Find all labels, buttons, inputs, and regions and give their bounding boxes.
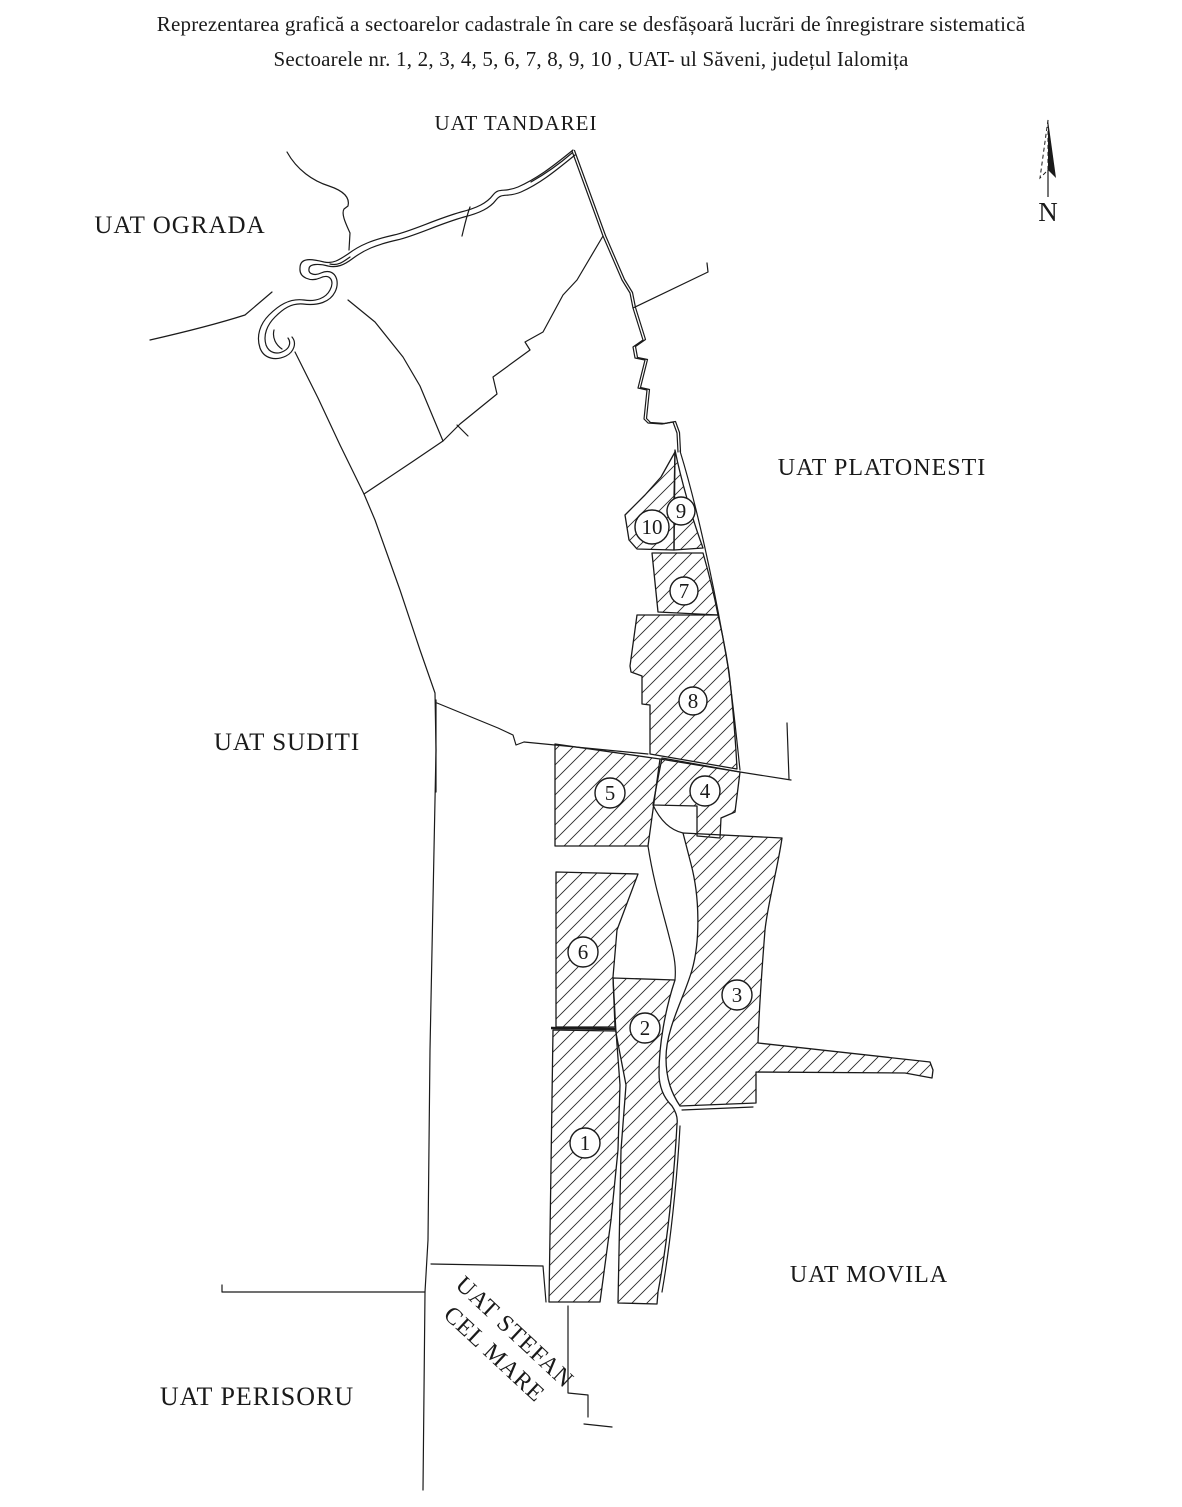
sector-number-label: 1 — [580, 1131, 591, 1155]
ograda-boundary-path — [150, 292, 272, 340]
sector-number-label: 9 — [676, 499, 687, 523]
neighbor-label-tandarei: UAT TANDAREI — [435, 111, 598, 135]
river-bank-inner-path — [265, 155, 575, 353]
east-boundary-path — [572, 151, 678, 452]
river-division-path — [348, 300, 468, 441]
sector-area-1 — [549, 1030, 620, 1302]
sector-number-label: 8 — [688, 689, 699, 713]
sector-area-3 — [666, 833, 933, 1106]
river-bank-outer-path — [258, 150, 573, 359]
sector-number-label: 10 — [642, 515, 663, 539]
east-boundary-double-path — [575, 151, 681, 452]
sector-marker-7: 7 — [670, 577, 698, 605]
neighbor-label-movila: UAT MOVILA — [790, 1262, 948, 1288]
sector-number-label: 3 — [732, 983, 743, 1007]
platonesti-branch-path — [633, 263, 708, 308]
neighbor-label-ograda: UAT OGRADA — [94, 212, 265, 239]
cadastral-map-page: Reprezentarea grafică a sectoarelor cada… — [0, 0, 1182, 1507]
north-label: N — [1038, 197, 1058, 227]
north-arrow-open-half — [1040, 120, 1048, 178]
stream-path — [287, 152, 350, 250]
sector-marker-10: 10 — [635, 510, 669, 544]
sector-marker-4: 4 — [690, 776, 720, 806]
stepped-division-path — [364, 236, 603, 494]
sector-marker-1: 1 — [570, 1128, 600, 1158]
north-arrow-filled-half — [1048, 120, 1056, 178]
neighbor-label-platonesti: UAT PLATONESTI — [778, 455, 986, 481]
stefan-boundary-path — [568, 1306, 612, 1427]
north-arrow: N — [1038, 120, 1058, 227]
perisoru-boundary-path — [222, 1285, 425, 1292]
map-canvas: 1 2 3 4 5 6 7 — [0, 0, 1182, 1507]
neighbor-label-suditi: UAT SUDITI — [214, 729, 360, 756]
sector-marker-9: 9 — [667, 497, 695, 525]
sector-marker-5: 5 — [595, 778, 625, 808]
sector-marker-3: 3 — [722, 980, 752, 1010]
neighbor-label-perisoru: UAT PERISORU — [160, 1382, 354, 1411]
sector-marker-2: 2 — [630, 1013, 660, 1043]
sector-number-label: 7 — [679, 579, 690, 603]
sector-divider-thick-path — [551, 1028, 616, 1029]
sector-number-label: 4 — [700, 779, 711, 803]
road-west-bank-path — [648, 846, 675, 980]
sector-marker-6: 6 — [568, 937, 598, 967]
sector-number-label: 5 — [605, 781, 616, 805]
road-east-bank-path — [653, 805, 683, 833]
sector-marker-8: 8 — [679, 687, 707, 715]
sector-number-label: 6 — [578, 940, 589, 964]
sector-number-label: 2 — [640, 1016, 651, 1040]
west-boundary-path — [295, 352, 436, 1490]
